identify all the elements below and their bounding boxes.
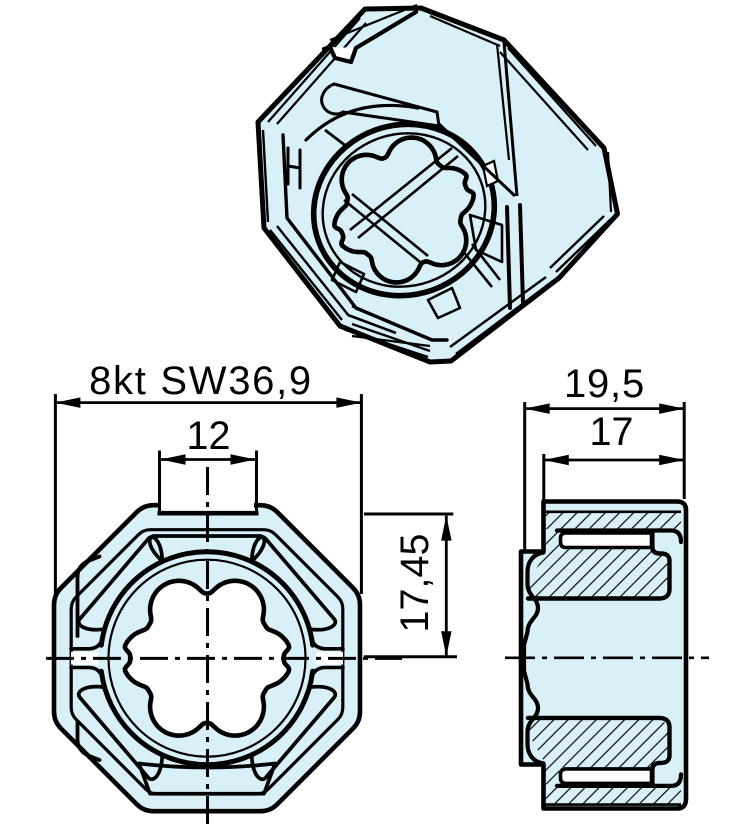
svg-text:19,5: 19,5 [564,362,645,406]
svg-text:17,45: 17,45 [393,534,437,633]
svg-text:8kt SW36,9: 8kt SW36,9 [89,359,313,403]
svg-text:17: 17 [590,410,634,454]
svg-text:12: 12 [187,414,231,458]
